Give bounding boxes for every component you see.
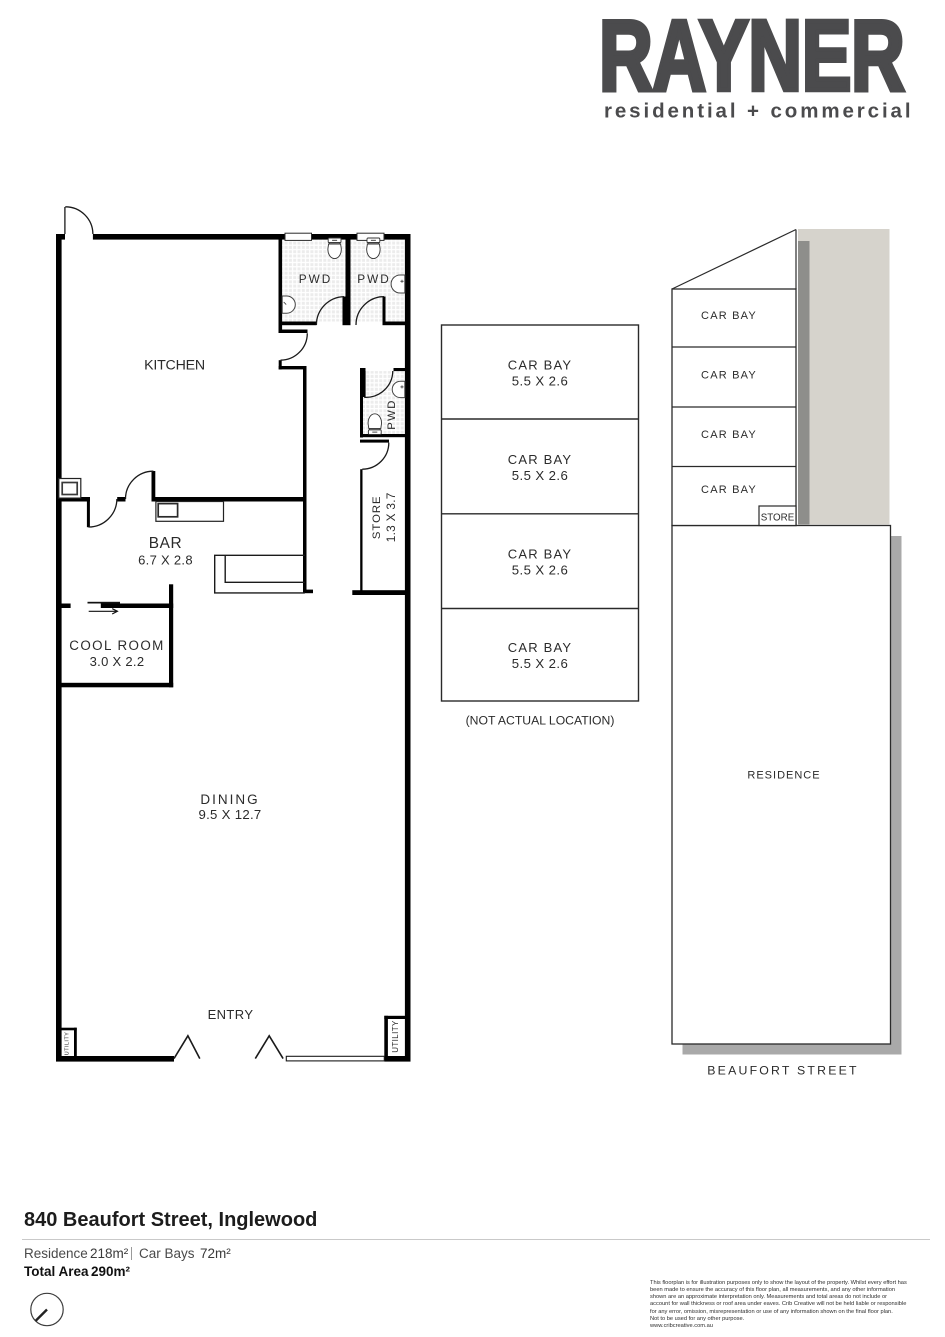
svg-text:CAR BAY: CAR BAY (701, 429, 757, 441)
svg-text:RESIDENCE: RESIDENCE (747, 770, 820, 782)
svg-text:5.5 X 2.6: 5.5 X 2.6 (512, 468, 568, 483)
svg-text:1.3 X 3.7: 1.3 X 3.7 (384, 492, 398, 542)
svg-text:CAR BAY: CAR BAY (508, 452, 573, 467)
svg-text:5.5 X 2.6: 5.5 X 2.6 (512, 656, 568, 671)
svg-text:CAR BAY: CAR BAY (701, 310, 757, 322)
svg-text:PWD: PWD (386, 399, 398, 430)
svg-text:DINING: DINING (200, 792, 259, 807)
svg-text:5.5 X 2.6: 5.5 X 2.6 (512, 563, 568, 578)
svg-text:CAR BAY: CAR BAY (701, 484, 757, 496)
svg-text:STORE: STORE (371, 495, 383, 539)
svg-text:BEAUFORT STREET: BEAUFORT STREET (707, 1064, 858, 1078)
svg-text:KITCHEN: KITCHEN (144, 358, 205, 374)
svg-text:PWD: PWD (299, 272, 333, 286)
svg-text:ENTRY: ENTRY (208, 1007, 254, 1022)
svg-text:3.0 X 2.2: 3.0 X 2.2 (90, 654, 145, 669)
svg-text:6.7 X 2.8: 6.7 X 2.8 (138, 553, 193, 568)
svg-text:BAR: BAR (149, 535, 182, 552)
svg-text:CAR BAY: CAR BAY (508, 358, 573, 373)
svg-text:CAR BAY: CAR BAY (701, 370, 757, 382)
svg-text:PWD: PWD (357, 272, 391, 286)
svg-text:STORE: STORE (761, 513, 795, 524)
svg-text:CAR BAY: CAR BAY (508, 640, 573, 655)
svg-text:UTILITY: UTILITY (391, 1020, 400, 1053)
svg-text:(NOT ACTUAL LOCATION): (NOT ACTUAL LOCATION) (466, 714, 615, 728)
svg-text:9.5 X 12.7: 9.5 X 12.7 (198, 807, 261, 822)
svg-text:COOL ROOM: COOL ROOM (69, 638, 164, 653)
svg-text:CAR BAY: CAR BAY (508, 547, 573, 562)
svg-text:5.5 X 2.6: 5.5 X 2.6 (512, 374, 568, 389)
svg-text:UTILITY: UTILITY (65, 1032, 71, 1056)
